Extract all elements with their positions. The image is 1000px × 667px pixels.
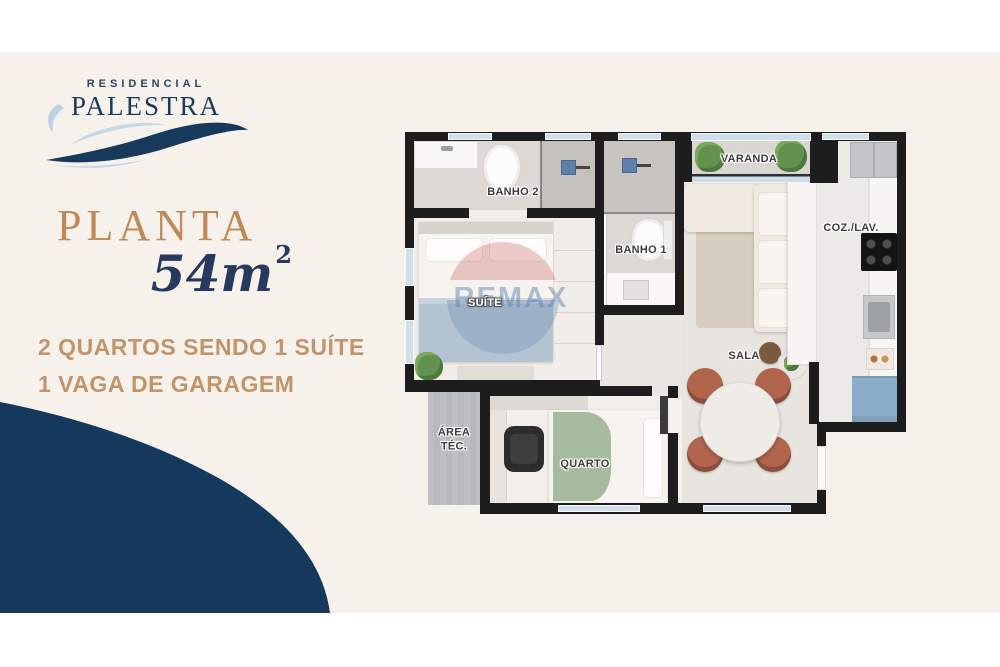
window-banho1: [618, 133, 661, 140]
wall-right: [897, 132, 906, 432]
label-sala: SALA: [728, 350, 759, 362]
window-kitchen: [822, 133, 869, 140]
window-sala: [703, 505, 791, 512]
area-value: 54m: [151, 244, 274, 303]
sink-basin-banho1: [623, 280, 649, 300]
wall-step: [817, 422, 906, 432]
plan-area: 54m2: [60, 240, 292, 303]
label-varanda: VARANDA: [721, 153, 777, 165]
sofa-chaise: [684, 184, 758, 232]
navy-corner-shape: [0, 402, 336, 613]
fridge: [850, 142, 897, 178]
cooktop: [861, 233, 897, 271]
window-quarto: [558, 505, 640, 512]
door-suite: [596, 345, 602, 381]
logo-residencial-text: RESIDENCIAL: [40, 78, 252, 90]
floor-banho1-shower: [603, 140, 677, 212]
faucet-banho2: [441, 146, 453, 151]
wall-quarto-right-upper: [668, 386, 678, 398]
door-quarto: [660, 396, 668, 434]
remax-watermark-text: REMAX: [429, 282, 593, 315]
label-banho1: BANHO 1: [615, 244, 667, 256]
feature-bedrooms: 2 QUARTOS SENDO 1 SUÍTE: [38, 329, 365, 366]
floor-plan: REMAX BANHO 2 BANHO 1 VARANDA COZ./LAV. …: [403, 130, 908, 514]
logo: RESIDENCIAL PALESTRA: [40, 78, 252, 170]
window-banho2-2: [545, 133, 591, 140]
wall-banho1-bottom: [603, 305, 684, 315]
shower-arm-banho2: [576, 166, 590, 169]
floor-banho2-shower: [541, 140, 597, 210]
throw-quarto: [553, 412, 611, 501]
shelf-quarto: [490, 396, 588, 410]
shower-head-banho1-icon: [622, 158, 637, 173]
shower-arm-banho1: [637, 164, 651, 167]
marketing-image: RESIDENCIAL PALESTRA PLANTA 54m2 2 QUART…: [0, 0, 1000, 667]
label-suite: SUÍTE: [468, 297, 502, 309]
label-coz-lav: COZ./LAV.: [823, 222, 878, 234]
toilet-banho2: [483, 144, 521, 192]
plant-suite: [415, 352, 443, 380]
feature-list: 2 QUARTOS SENDO 1 SUÍTE 1 VAGA DE GARAGE…: [38, 329, 365, 403]
wall-quarto-right-lower: [668, 433, 678, 514]
wall-kitchen-lowerleft: [809, 362, 819, 424]
label-quarto: QUARTO: [560, 458, 609, 470]
shower-head-banho2-icon: [561, 160, 576, 175]
bench-suite: [458, 366, 533, 380]
shower-glass-banho2: [540, 140, 542, 210]
area-superscript: 2: [275, 240, 292, 269]
entrance-door: [817, 446, 826, 490]
shower-glass-banho1: [603, 212, 677, 214]
wall-quarto-left: [480, 386, 490, 514]
kitchen-peninsula: [787, 175, 817, 365]
kitchen-decor: [866, 348, 894, 370]
feature-garage: 1 VAGA DE GARAGEM: [38, 366, 365, 403]
label-banho2: BANHO 2: [487, 186, 539, 198]
plant-varanda-right: [775, 140, 807, 172]
kitchen-sink-basin: [868, 302, 890, 332]
office-chair-seat: [510, 434, 538, 464]
wall-banho2-bottom-left: [405, 208, 469, 218]
window-suite-2: [405, 320, 414, 364]
wall-quarto-top: [480, 386, 652, 396]
label-area-tecnica: ÁREA TÉC.: [430, 426, 478, 454]
dining-table: [700, 382, 780, 462]
window-varanda: [691, 133, 811, 141]
wall-banho2-bottom-right: [527, 208, 595, 218]
varanda-railing: [691, 174, 811, 182]
headboard-suite: [419, 222, 553, 234]
laundry-cabinet-blue: [852, 376, 898, 424]
window-banho2-1: [448, 133, 492, 140]
window-suite-1: [405, 248, 414, 286]
logo-name-text: PALESTRA: [40, 91, 252, 122]
